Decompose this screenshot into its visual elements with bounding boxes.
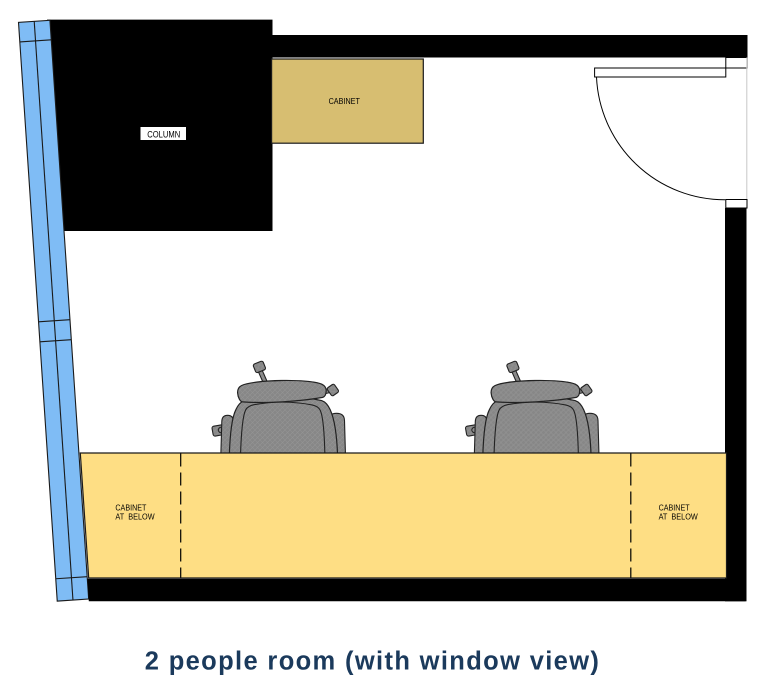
svg-text:AT BELOW: AT BELOW (659, 513, 699, 522)
svg-text:CABINET: CABINET (659, 504, 690, 513)
svg-text:COLUMN: COLUMN (147, 129, 180, 140)
svg-text:CABINET: CABINET (329, 96, 360, 106)
svg-text:CABINET: CABINET (115, 504, 146, 513)
svg-text:AT BELOW: AT BELOW (115, 513, 155, 522)
svg-text:2 people room (with window vie: 2 people room (with window view) (145, 648, 600, 676)
